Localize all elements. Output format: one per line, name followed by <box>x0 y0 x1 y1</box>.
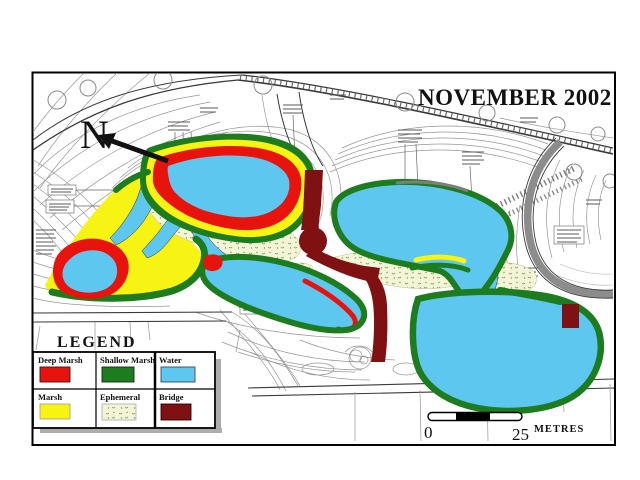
svg-text:Water: Water <box>159 355 182 365</box>
svg-text:Marsh: Marsh <box>38 392 62 402</box>
svg-text:Shallow Marsh: Shallow Marsh <box>100 355 155 365</box>
water-swatch <box>161 367 195 382</box>
scale-zero: 0 <box>424 423 433 442</box>
marsh-swatch <box>40 404 70 419</box>
bridge-square <box>562 304 579 328</box>
shallow-marsh-swatch <box>102 367 134 382</box>
svg-text:Bridge: Bridge <box>159 392 184 402</box>
deep-marsh-swatch <box>40 367 70 382</box>
legend-title: LEGEND <box>57 334 137 351</box>
site-map: N NOVEMBER 2002 LEGEND Deep Marsh Shallo… <box>0 0 640 480</box>
scale-unit: METRES <box>534 424 584 435</box>
svg-text:Ephemeral: Ephemeral <box>100 392 141 402</box>
bridge-swatch <box>161 404 191 420</box>
legend-shadow-right <box>216 359 221 429</box>
svg-text:Deep Marsh: Deep Marsh <box>38 355 83 365</box>
legend-item-ephemeral: Ephemeral <box>100 392 141 420</box>
scale-distance: 25 <box>512 425 529 444</box>
map-title: NOVEMBER 2002 <box>418 85 612 110</box>
ephemeral-swatch <box>102 404 136 420</box>
scale-bar-fill <box>456 413 490 421</box>
map-page: N NOVEMBER 2002 LEGEND Deep Marsh Shallo… <box>0 0 640 480</box>
